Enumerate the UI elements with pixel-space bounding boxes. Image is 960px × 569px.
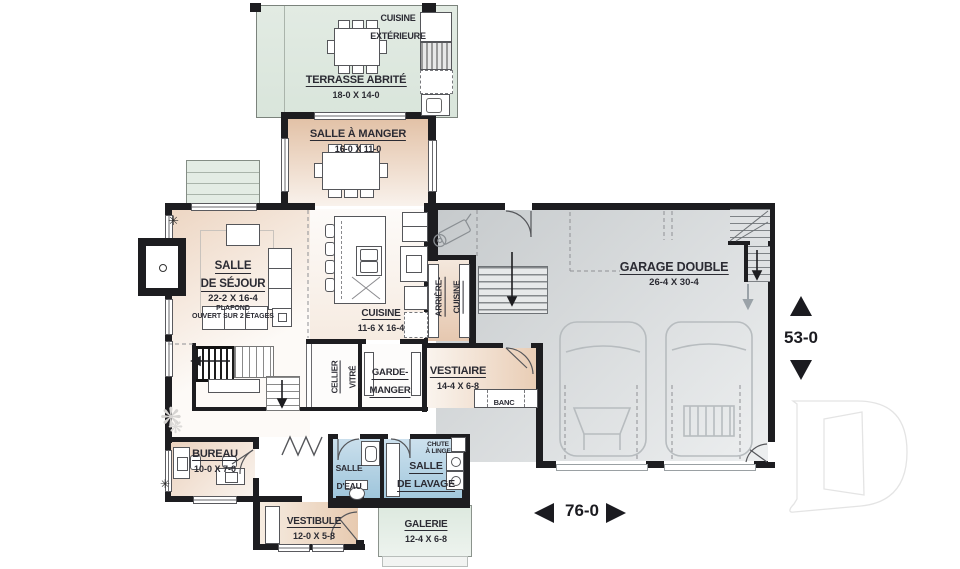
chair — [379, 163, 388, 178]
stairs-main-flight-light — [234, 346, 274, 378]
label-arriere-cuisine: ARRIÈRE- CUISINE — [429, 277, 466, 317]
laundry-chute-box — [451, 437, 466, 452]
outdoor-kitchen-sink — [421, 94, 450, 116]
label-salle-de-sejour: SALLE DE SÉJOUR 22-2 X 16-4 PLAFOND OUVE… — [192, 256, 274, 321]
label-bureau: BUREAU 10-0 X 7-0 — [192, 444, 238, 474]
stool — [325, 260, 335, 274]
label-salle-lavage: SALLE DE LAVAGE — [397, 456, 455, 492]
wall — [165, 437, 259, 442]
wall — [258, 496, 302, 502]
tree-icon: ❋ — [168, 418, 183, 436]
door-gap — [505, 203, 532, 210]
wall — [306, 339, 366, 344]
wall — [436, 203, 775, 210]
counter — [404, 312, 428, 338]
floor-plan: ✳ ✳ ❋ ❋ CUISINE EXTÉRIEURE TERRASSE ABRI… — [0, 0, 960, 569]
opening-zigzag — [282, 437, 322, 455]
wall — [427, 343, 503, 348]
label-salle-eau: SALLE D'EAU — [336, 458, 363, 494]
glass-wall — [306, 344, 312, 407]
dimension-arrow-right — [606, 503, 626, 523]
service-door-gap — [768, 442, 775, 462]
stool — [325, 242, 335, 256]
room-garage — [436, 209, 770, 462]
patio-door — [191, 203, 257, 211]
label-garde-manger: GARDE- MANGER — [369, 362, 410, 398]
chair — [344, 189, 358, 198]
label-cuisine: CUISINE 11-6 X 16-4 — [358, 303, 405, 333]
dimension-width: 76-0 — [565, 501, 599, 521]
counter — [404, 286, 428, 310]
label-vestibule: VESTIBULE 12-0 X 5-8 — [287, 511, 341, 541]
chair — [338, 20, 350, 29]
terrasse-divider — [284, 6, 285, 115]
stairs-main-flight-dark — [196, 346, 234, 382]
stairs-garage-corner-upper — [730, 209, 770, 241]
outdoor-kitchen-grill — [420, 42, 452, 70]
label-chute-linge: CHUTE À LINGE — [425, 441, 450, 456]
label-galerie: GALERIE 12-4 X 6-8 — [404, 514, 447, 544]
label-terrasse: TERRASSE ABRITÉ 18-0 X 14-0 — [306, 70, 407, 100]
armchair — [226, 224, 260, 246]
outdoor-kitchen-counter — [420, 70, 453, 94]
window — [193, 496, 237, 504]
dining-table — [322, 152, 380, 190]
label-cuisine-exterieure: CUISINE EXTÉRIEURE — [370, 8, 426, 44]
window — [165, 299, 173, 335]
island-sink — [356, 246, 382, 276]
wall — [469, 259, 476, 345]
chair — [360, 189, 374, 198]
wall — [356, 540, 364, 550]
label-garage: GARAGE DOUBLE 26-4 X 30-4 — [620, 258, 729, 289]
wall — [250, 3, 261, 12]
window — [278, 544, 310, 552]
stair-rail — [744, 241, 748, 282]
window — [281, 138, 289, 192]
wall — [192, 407, 428, 411]
galerie-step — [382, 556, 468, 567]
window — [312, 544, 344, 552]
stool — [325, 278, 335, 292]
plant-icon: ✳ — [168, 214, 179, 227]
chair — [314, 163, 323, 178]
rear-deck — [186, 160, 260, 207]
window — [165, 341, 173, 377]
wall — [253, 437, 259, 449]
fridge — [402, 212, 428, 242]
label-vestiaire: VESTIAIRE 14-4 X 6-8 — [430, 361, 486, 391]
garage-door — [556, 464, 648, 471]
chair — [328, 189, 342, 198]
wall — [328, 498, 470, 508]
vestibule-closet — [265, 506, 280, 544]
window — [428, 140, 437, 192]
wall — [422, 343, 427, 412]
label-salle-a-manger: SALLE À MANGER 16-0 X 11-0 — [310, 124, 406, 154]
stairs-main-lower-run — [266, 376, 300, 411]
stairs-landing — [208, 379, 260, 393]
wall — [328, 434, 333, 502]
label-banc: BANC — [494, 392, 515, 410]
stool — [325, 224, 335, 238]
label-cellier: CELLIER VITRÉ — [325, 361, 362, 394]
chair — [327, 40, 335, 54]
side-table — [272, 308, 292, 327]
wall — [380, 434, 384, 502]
wall — [768, 203, 775, 468]
fireplace — [138, 238, 186, 296]
wall — [253, 496, 260, 550]
stairs-garage-entry — [478, 266, 548, 314]
plant-icon: ✳ — [160, 478, 170, 490]
garage-door — [664, 464, 756, 471]
dimension-arrow-left — [534, 503, 554, 523]
brand-d-watermark — [790, 401, 907, 512]
patio-door — [314, 112, 406, 120]
chair — [352, 20, 364, 29]
stairs-garage-corner-lower — [748, 246, 770, 282]
bathroom-sink — [361, 441, 380, 466]
dimension-arrow-down — [790, 360, 812, 380]
pantry-shelf — [411, 352, 421, 396]
stove — [400, 246, 428, 282]
desk — [173, 447, 190, 479]
dimension-depth: 53-0 — [784, 328, 818, 348]
dimension-arrow-up — [790, 296, 812, 316]
